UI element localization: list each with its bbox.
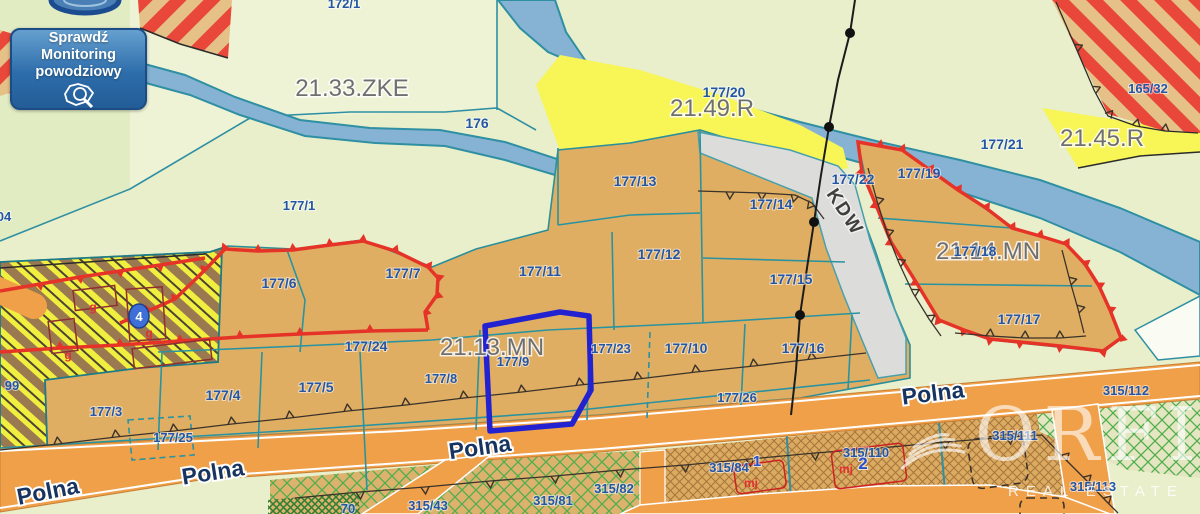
- zone-label: 21.33.ZKE: [295, 75, 408, 102]
- parcel-label: 70: [341, 501, 355, 514]
- parcel-label: 315/113: [1070, 479, 1116, 494]
- parcel-label: 177/12: [638, 246, 681, 262]
- parcel-label: 177/7: [385, 265, 420, 281]
- parcel-label: 177/18: [954, 243, 997, 259]
- parcel-label: 172/1: [328, 0, 361, 11]
- parcel-label: 315/84: [709, 460, 750, 475]
- parcel-label: 177/10: [665, 340, 708, 356]
- parcel-label: 177/25: [153, 430, 193, 445]
- parcel-label: 04: [0, 209, 12, 224]
- map-stage: 21.33.ZKE 21.49.R 21.45.R 21.13.MN 21.14…: [0, 0, 1200, 514]
- parcel-label: 177/17: [998, 311, 1041, 327]
- badge-4: 4: [135, 309, 143, 324]
- parcel-label: 177/8: [425, 371, 458, 386]
- parcel-label: 177/9: [497, 354, 530, 369]
- parcel-label: 177/24: [345, 338, 388, 354]
- parcel-label: 315/112: [1103, 383, 1149, 398]
- badge-1: 1: [753, 453, 761, 470]
- parcel-label: 177/13: [614, 173, 657, 189]
- mj-marker: mj: [839, 462, 853, 476]
- map-canvas[interactable]: 21.33.ZKE 21.49.R 21.45.R 21.13.MN 21.14…: [0, 0, 1200, 514]
- gas-marker: g: [89, 300, 96, 314]
- parcel-label: 177/21: [981, 136, 1024, 152]
- parcel-label: 177/16: [782, 340, 825, 356]
- parcel-label: 99: [5, 378, 19, 393]
- flood-button-line2: Monitoring: [12, 47, 145, 64]
- parcel-label: 177/1: [283, 198, 316, 213]
- flood-button-line3: powodziowy: [12, 64, 145, 81]
- parcel-label: 315/82: [594, 481, 634, 496]
- parcel-label: 315/81: [533, 493, 573, 508]
- parcel-label: 177/5: [298, 379, 333, 395]
- parcel-label: 177/23: [591, 341, 631, 356]
- parcel-label: 177/11: [519, 263, 561, 279]
- parcel-label: 177/4: [205, 387, 240, 403]
- flood-button-line1: Sprawdź: [12, 30, 145, 47]
- parcel-label: 165/32: [1128, 81, 1168, 96]
- parcel-label: 315/111: [992, 428, 1038, 443]
- parcel-label: 177/22: [832, 171, 875, 187]
- zone-label: 21.45.R: [1060, 125, 1144, 152]
- gas-marker: g: [64, 348, 71, 362]
- badge-2: 2: [858, 454, 867, 473]
- parcel-label: 177/6: [261, 275, 296, 291]
- parcel-label: 177/20: [703, 84, 746, 100]
- gas-marker: g: [145, 326, 152, 340]
- parcel-label: 177/15: [770, 271, 813, 287]
- map-pin-ellipse: [51, 0, 119, 13]
- parcel-label: 315/43: [408, 498, 448, 513]
- parcel-label: 177/14: [750, 196, 793, 212]
- parcel-label: 176: [465, 115, 489, 131]
- parcel-label: 177/3: [90, 404, 123, 419]
- parcel-label: 177/26: [717, 390, 757, 405]
- flood-monitoring-button[interactable]: Sprawdź Monitoring powodziowy: [10, 28, 147, 110]
- mj-marker: mj: [744, 476, 758, 490]
- poland-magnifier-icon: [12, 82, 145, 111]
- parcel-label: 177/19: [898, 165, 941, 181]
